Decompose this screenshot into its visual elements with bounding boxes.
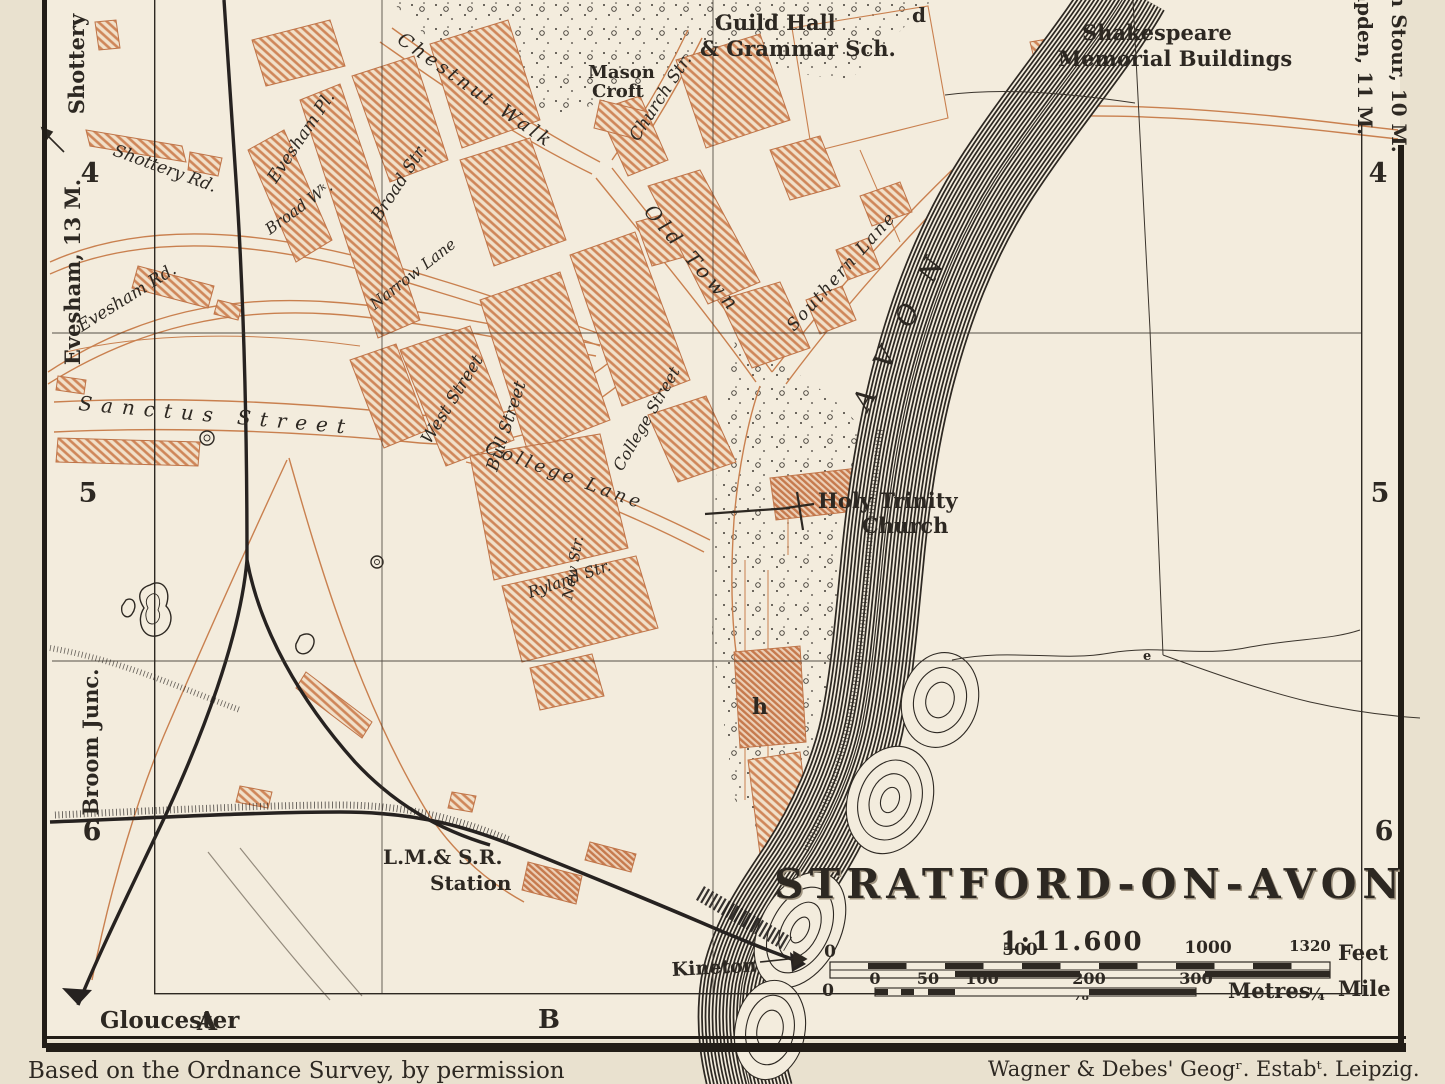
margin-label-gloucester: Gloucester: [100, 1007, 240, 1034]
grid-row-4-right: 4: [1369, 158, 1388, 189]
place-label-station-1: L.M.& S.R.: [383, 845, 502, 869]
margin-label-stour: on Stour, 10 M.: [1387, 0, 1411, 153]
grid-row-6-left: 6: [83, 816, 102, 847]
place-label-shakespeare-2: Memorial Buildings: [1058, 46, 1292, 71]
margin-label-shottery: Shottery: [64, 13, 89, 114]
metre-tick-0: 0: [869, 969, 880, 988]
place-label-holy-trinity-2: Church: [862, 513, 948, 538]
place-label-guild-hall-2: & Grammar Sch.: [700, 36, 896, 61]
metre-tick-50: 50: [917, 969, 939, 988]
ref-letter-h: h: [752, 694, 768, 720]
place-label-shakespeare-1: Shakespeare: [1082, 20, 1232, 45]
ref-letter-d: d: [912, 3, 926, 27]
metre-tick-300: 300: [1179, 969, 1212, 988]
feet-tick-1000: 1000: [1184, 938, 1231, 958]
place-label-guild-hall-1: Guild Hall: [715, 10, 836, 35]
feet-tick-0: 0: [824, 942, 836, 962]
grid-col-b: B: [538, 1005, 560, 1035]
map-photo-page: Chestnut Walk Church Str. Broad Str. Eve…: [0, 0, 1445, 1084]
map-title: STRATFORD-ON-AVON: [774, 860, 1406, 908]
ref-letter-e: e: [1143, 649, 1151, 664]
margin-label-broom-junc: Broom Junc.: [78, 669, 103, 816]
margin-label-evesham: Evesham, 13 M.: [60, 179, 85, 365]
credit-ordnance-survey: Based on the Ordnance Survey, by permiss…: [28, 1058, 565, 1084]
feet-tick-1320: 1320: [1289, 937, 1331, 955]
feet-tick-500: 500: [1002, 940, 1038, 960]
grid-row-6-right: 6: [1375, 816, 1394, 847]
place-label-station-2: Station: [430, 871, 512, 895]
grid-row-5-left: 5: [79, 478, 98, 509]
grid-row-4-left: 4: [81, 158, 100, 189]
margin-label-campden: mpden, 11 M.: [1353, 0, 1377, 135]
place-label-kineton: Kineton: [671, 955, 757, 981]
metre-tick-200: 200: [1072, 969, 1105, 988]
place-label-mason-2: Croft: [592, 81, 645, 102]
map-artwork: Chestnut Walk Church Str. Broad Str. Eve…: [0, 0, 1445, 1084]
metre-unit-label: Metres: [1228, 978, 1311, 1003]
grid-col-a: A: [196, 1007, 218, 1037]
mile-tick-0: 0: [822, 981, 834, 1001]
grid-row-5-right: 5: [1371, 478, 1390, 509]
feet-unit-label: Feet: [1338, 940, 1388, 965]
place-label-holy-trinity-1: Holy Trinity: [818, 488, 958, 513]
place-label-mason-1: Mason: [588, 62, 655, 83]
metre-tick-100: 100: [965, 969, 998, 988]
mile-unit-label: Mile: [1338, 976, 1391, 1001]
credit-wagner-debes: Wagner & Debes' Geogʳ. Estabᵗ. Leipzig.: [988, 1057, 1420, 1081]
